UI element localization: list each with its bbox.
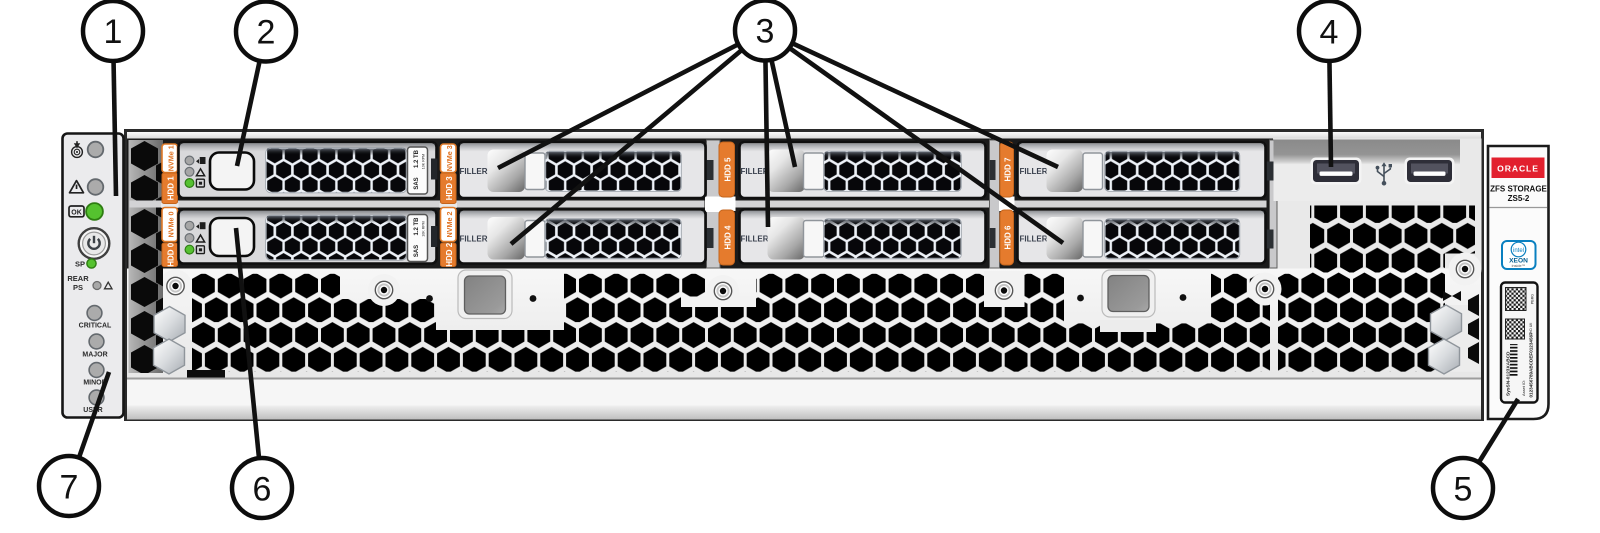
svg-text:FILLER: FILLER [1020, 235, 1048, 244]
svg-text:ZFS STORAGE: ZFS STORAGE [1490, 185, 1547, 194]
svg-text:FILLER: FILLER [1020, 167, 1048, 176]
svg-text:HDD 4: HDD 4 [723, 225, 732, 250]
svg-text:inside™: inside™ [1512, 264, 1526, 268]
svg-text:ORACLE: ORACLE [1497, 164, 1539, 174]
svg-text:FILLER: FILLER [460, 167, 488, 176]
svg-text:0123456789ABCDEF01234567: 0123456789ABCDEF01234567 [1529, 332, 1534, 398]
svg-text:10K RPM: 10K RPM [421, 221, 425, 236]
svg-text:3: 3 [756, 13, 775, 51]
svg-text:REAR: REAR [67, 274, 89, 283]
svg-text:NVMe 1: NVMe 1 [166, 145, 175, 171]
svg-text:SAS: SAS [414, 177, 420, 189]
svg-text:HDD 3: HDD 3 [445, 176, 454, 201]
svg-text:SAS: SAS [414, 245, 420, 257]
svg-text:Asset ID:: Asset ID: [1521, 380, 1526, 396]
svg-text:NVMe 2: NVMe 2 [445, 212, 454, 238]
svg-text:PBRG: PBRG [1531, 294, 1535, 304]
svg-text:1.2 TB: 1.2 TB [414, 149, 420, 168]
svg-text:10K RPM: 10K RPM [421, 154, 425, 169]
svg-text:MAJOR: MAJOR [82, 352, 107, 359]
svg-text:intel: intel [1513, 248, 1524, 254]
svg-text:6: 6 [253, 471, 272, 509]
svg-text:HDD 7: HDD 7 [1003, 157, 1012, 182]
svg-text:CRITICAL: CRITICAL [79, 323, 112, 330]
svg-text:FILLER: FILLER [741, 235, 769, 244]
svg-text:HDD 6: HDD 6 [1003, 225, 1012, 250]
svg-text:HDD 5: HDD 5 [723, 157, 732, 182]
svg-text:1: 1 [104, 13, 123, 51]
svg-text:FILLER: FILLER [741, 167, 769, 176]
svg-text:SP: SP [75, 260, 85, 269]
svg-text:5: 5 [1454, 471, 1473, 509]
svg-text:4: 4 [1320, 14, 1339, 52]
svg-text:HDD 0: HDD 0 [166, 242, 175, 267]
svg-text:OK: OK [71, 210, 82, 217]
svg-text:2: 2 [257, 14, 276, 52]
svg-text:ZS5-2: ZS5-2 [1508, 194, 1530, 203]
svg-text:HDD 2: HDD 2 [445, 242, 454, 267]
svg-text:NVMe 3: NVMe 3 [445, 145, 454, 171]
svg-text:1.2 TB: 1.2 TB [414, 217, 420, 236]
svg-text:FILLER: FILLER [460, 235, 488, 244]
svg-text:PS: PS [73, 283, 83, 292]
svg-text:7: 7 [60, 469, 79, 507]
svg-text:NVMe 0: NVMe 0 [166, 212, 175, 238]
svg-text:HDD 1: HDD 1 [166, 176, 175, 201]
